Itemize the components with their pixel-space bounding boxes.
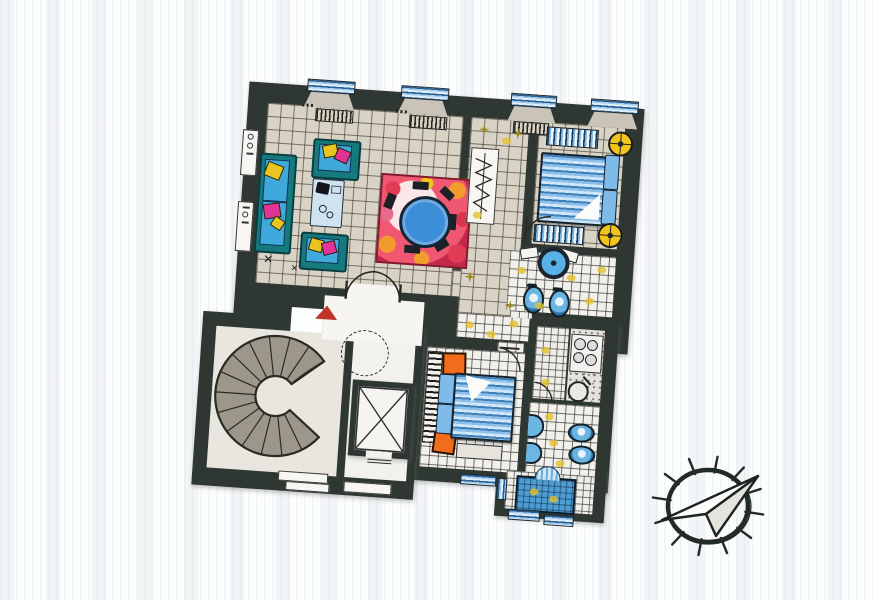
scribble-mark — [242, 206, 249, 208]
entrance-arrow — [315, 305, 338, 321]
radiator — [409, 115, 448, 131]
radiator — [315, 108, 354, 124]
floor-x-mark: ✕ — [263, 253, 274, 266]
floor-accent-tile — [549, 495, 558, 503]
bathroom-door-arc — [532, 380, 555, 403]
scribble-mark — [246, 152, 253, 154]
dining-chair — [412, 181, 429, 190]
window-sill — [508, 509, 541, 522]
window-sill — [543, 514, 574, 527]
elevator-shaft — [354, 386, 408, 453]
floor-x-mark: ✕ — [290, 263, 298, 275]
wall-annotation-label — [240, 129, 259, 176]
bed1-bench — [546, 126, 599, 149]
coffee-table-pad — [331, 185, 342, 194]
coffee-table-object — [315, 182, 330, 195]
spiral-staircase — [200, 319, 350, 480]
floor-plan: ✕ ✕ — [190, 73, 651, 532]
scribble-mark — [247, 142, 253, 148]
bed1-headboard — [603, 154, 620, 190]
bed2-bench — [456, 443, 503, 461]
bidet-cap — [553, 287, 563, 292]
elevator-x-symbol — [354, 386, 408, 453]
compass-rose — [646, 450, 772, 570]
wardrobe-hanger-scribble — [467, 148, 498, 224]
entrance-double-door — [342, 267, 404, 305]
bed1-headboard — [600, 189, 617, 225]
wardrobe — [466, 147, 499, 225]
bedroom2-door-arc — [496, 345, 524, 373]
scribble-mark — [247, 133, 253, 139]
toilet-tank — [527, 283, 537, 288]
floor-accent-tile — [529, 488, 538, 496]
window-sill — [496, 478, 508, 501]
scribble-mark — [242, 211, 248, 217]
scanned-paper-background: ✕ ✕ — [0, 0, 873, 600]
window-sill — [460, 473, 497, 486]
bedroom1-door-arc — [523, 213, 553, 243]
scribble-mark — [241, 221, 248, 223]
